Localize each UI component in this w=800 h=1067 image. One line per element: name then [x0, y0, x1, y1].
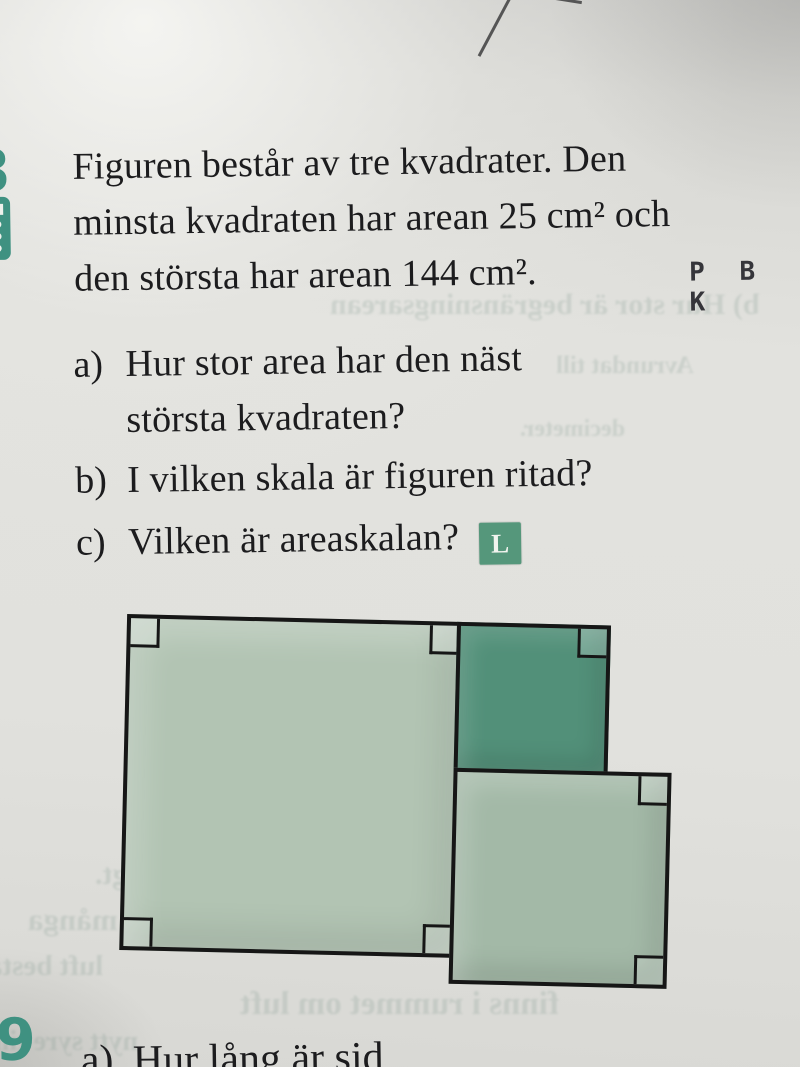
part-label: c)	[76, 514, 129, 571]
right-angle-mark	[422, 924, 452, 954]
marker-k: K	[689, 287, 705, 317]
largest-square	[119, 614, 463, 958]
textbook-page-photo: b) Hur stor är begränsningsareanAvrundat…	[0, 0, 800, 1067]
calculator-button-dot	[0, 233, 2, 240]
problem-9-part-a: a) Hur lång är sid	[80, 1028, 384, 1067]
marker-p: P	[689, 257, 705, 287]
right-angle-mark	[577, 629, 607, 659]
statement-line: den största har arean 144 cm².	[74, 242, 672, 307]
problem-number-8: 8	[0, 142, 10, 201]
part-label: b)	[75, 452, 128, 509]
ability-markers: P B K	[689, 256, 797, 318]
right-angle-mark	[130, 618, 160, 648]
right-angle-mark	[429, 625, 459, 655]
level-badge-l: L	[479, 522, 522, 565]
statement-line: minsta kvadraten har arean 25 cm² och	[73, 186, 671, 251]
part-label: a)	[80, 1032, 133, 1067]
problem-8-part-c: c) Vilken är areaskalan?L	[76, 508, 522, 571]
problem-8-statement: Figuren består av tre kvadrater. Den min…	[72, 130, 671, 307]
right-angle-mark	[638, 776, 668, 806]
calculator-screen	[0, 204, 3, 215]
part-text: Vilken är areaskalan?	[128, 516, 460, 563]
page-content: 8 Figuren består av tre kvadrater. Den m…	[0, 0, 800, 1067]
part-text-line: Vilken är areaskalan?L	[128, 508, 522, 570]
medium-square	[449, 768, 672, 989]
statement-line: Figuren består av tre kvadrater. Den	[72, 130, 670, 195]
right-angle-mark	[123, 917, 153, 947]
problem-8-part-b: b) I vilken skala är figuren ritad?	[75, 445, 593, 509]
part-text-line: största kvadraten?	[126, 386, 523, 448]
part-text-line: Hur stor area har den näst	[125, 330, 522, 392]
part-text-line: Hur lång är sid	[132, 1028, 384, 1067]
three-squares-figure	[118, 614, 692, 1012]
right-angle-mark	[634, 955, 664, 985]
problem-number-9: 9	[0, 1010, 36, 1067]
small-dark-square	[454, 622, 611, 776]
calculator-button-dot	[0, 221, 1, 228]
problem-8-part-a: a) Hur stor area har den näst största kv…	[73, 330, 523, 449]
part-label: a)	[73, 336, 127, 449]
calculator-icon	[0, 197, 11, 261]
calculator-button-dot	[0, 245, 2, 252]
part-text-line: I vilken skala är figuren ritad?	[127, 445, 593, 508]
marker-b: B	[739, 257, 755, 287]
